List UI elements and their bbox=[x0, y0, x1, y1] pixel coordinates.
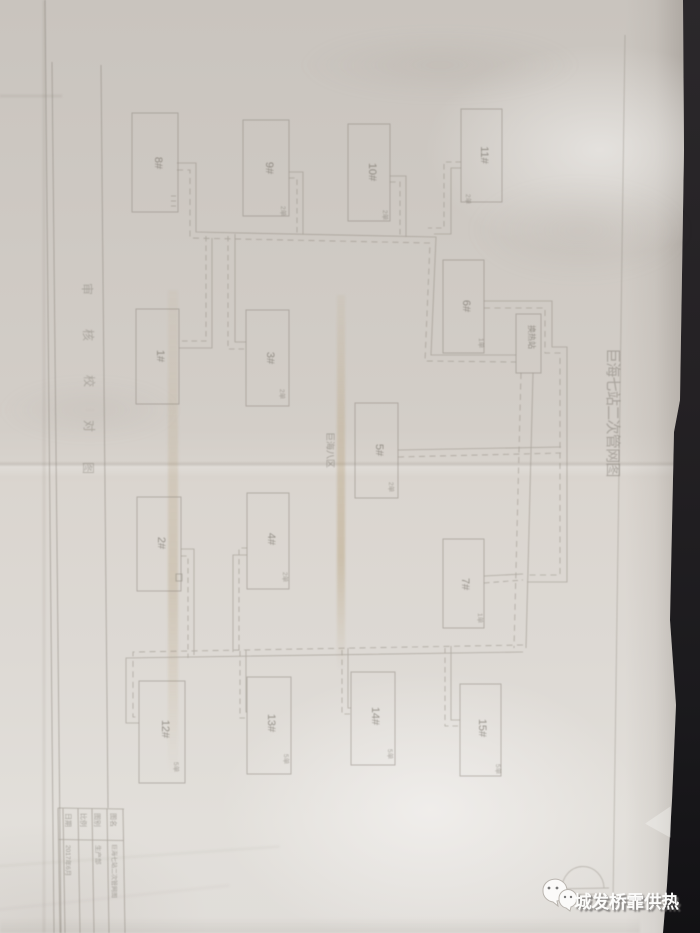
svg-text:2单: 2单 bbox=[278, 389, 287, 400]
svg-text:审: 审 bbox=[80, 283, 95, 295]
svg-text:图别: 图别 bbox=[93, 813, 102, 827]
svg-text:图: 图 bbox=[81, 462, 95, 474]
svg-text:4#: 4# bbox=[265, 533, 277, 546]
svg-text:2单: 2单 bbox=[381, 210, 390, 221]
svg-text:1单: 1单 bbox=[476, 613, 485, 624]
svg-text:比例: 比例 bbox=[79, 813, 88, 827]
svg-text:6#: 6# bbox=[460, 300, 472, 313]
svg-text:2单: 2单 bbox=[464, 194, 473, 205]
svg-text:2单: 2单 bbox=[281, 572, 290, 583]
svg-text:对: 对 bbox=[82, 420, 96, 432]
svg-text:5单: 5单 bbox=[386, 749, 395, 760]
svg-text:5单: 5单 bbox=[282, 754, 291, 765]
svg-text:5单: 5单 bbox=[494, 764, 503, 775]
svg-text:15#: 15# bbox=[476, 719, 488, 738]
svg-text:5单: 5单 bbox=[172, 762, 181, 773]
svg-text:12#: 12# bbox=[159, 720, 171, 739]
svg-text:1单: 1单 bbox=[477, 338, 486, 349]
svg-text:11#: 11# bbox=[478, 146, 490, 164]
svg-text:巨海七站二次管网图: 巨海七站二次管网图 bbox=[604, 348, 621, 477]
svg-text:2单: 2单 bbox=[279, 206, 288, 217]
svg-text:换热站: 换热站 bbox=[527, 325, 537, 349]
svg-text:1#: 1# bbox=[154, 350, 166, 363]
svg-text:日期: 日期 bbox=[64, 813, 72, 827]
svg-text:巨海八区: 巨海八区 bbox=[325, 432, 336, 468]
svg-text:5#: 5# bbox=[373, 444, 385, 457]
svg-text:7#: 7# bbox=[459, 578, 471, 591]
svg-text:生产部: 生产部 bbox=[94, 845, 103, 865]
svg-text:3#: 3# bbox=[264, 352, 276, 365]
svg-text:核: 核 bbox=[81, 329, 95, 341]
svg-text:9#: 9# bbox=[263, 162, 275, 175]
svg-text:巨海七站二次管网图: 巨海七站二次管网图 bbox=[110, 844, 118, 898]
svg-text:2#: 2# bbox=[155, 537, 167, 550]
svg-text:8#: 8# bbox=[152, 157, 164, 170]
svg-text:2017年6月: 2017年6月 bbox=[64, 845, 73, 876]
svg-text:2单: 2单 bbox=[387, 482, 396, 493]
svg-text:10#: 10# bbox=[366, 163, 378, 182]
svg-text:13#: 13# bbox=[265, 714, 277, 733]
svg-text:图名: 图名 bbox=[109, 813, 118, 827]
svg-text:校: 校 bbox=[82, 375, 97, 387]
svg-text:14#: 14# bbox=[369, 707, 381, 726]
